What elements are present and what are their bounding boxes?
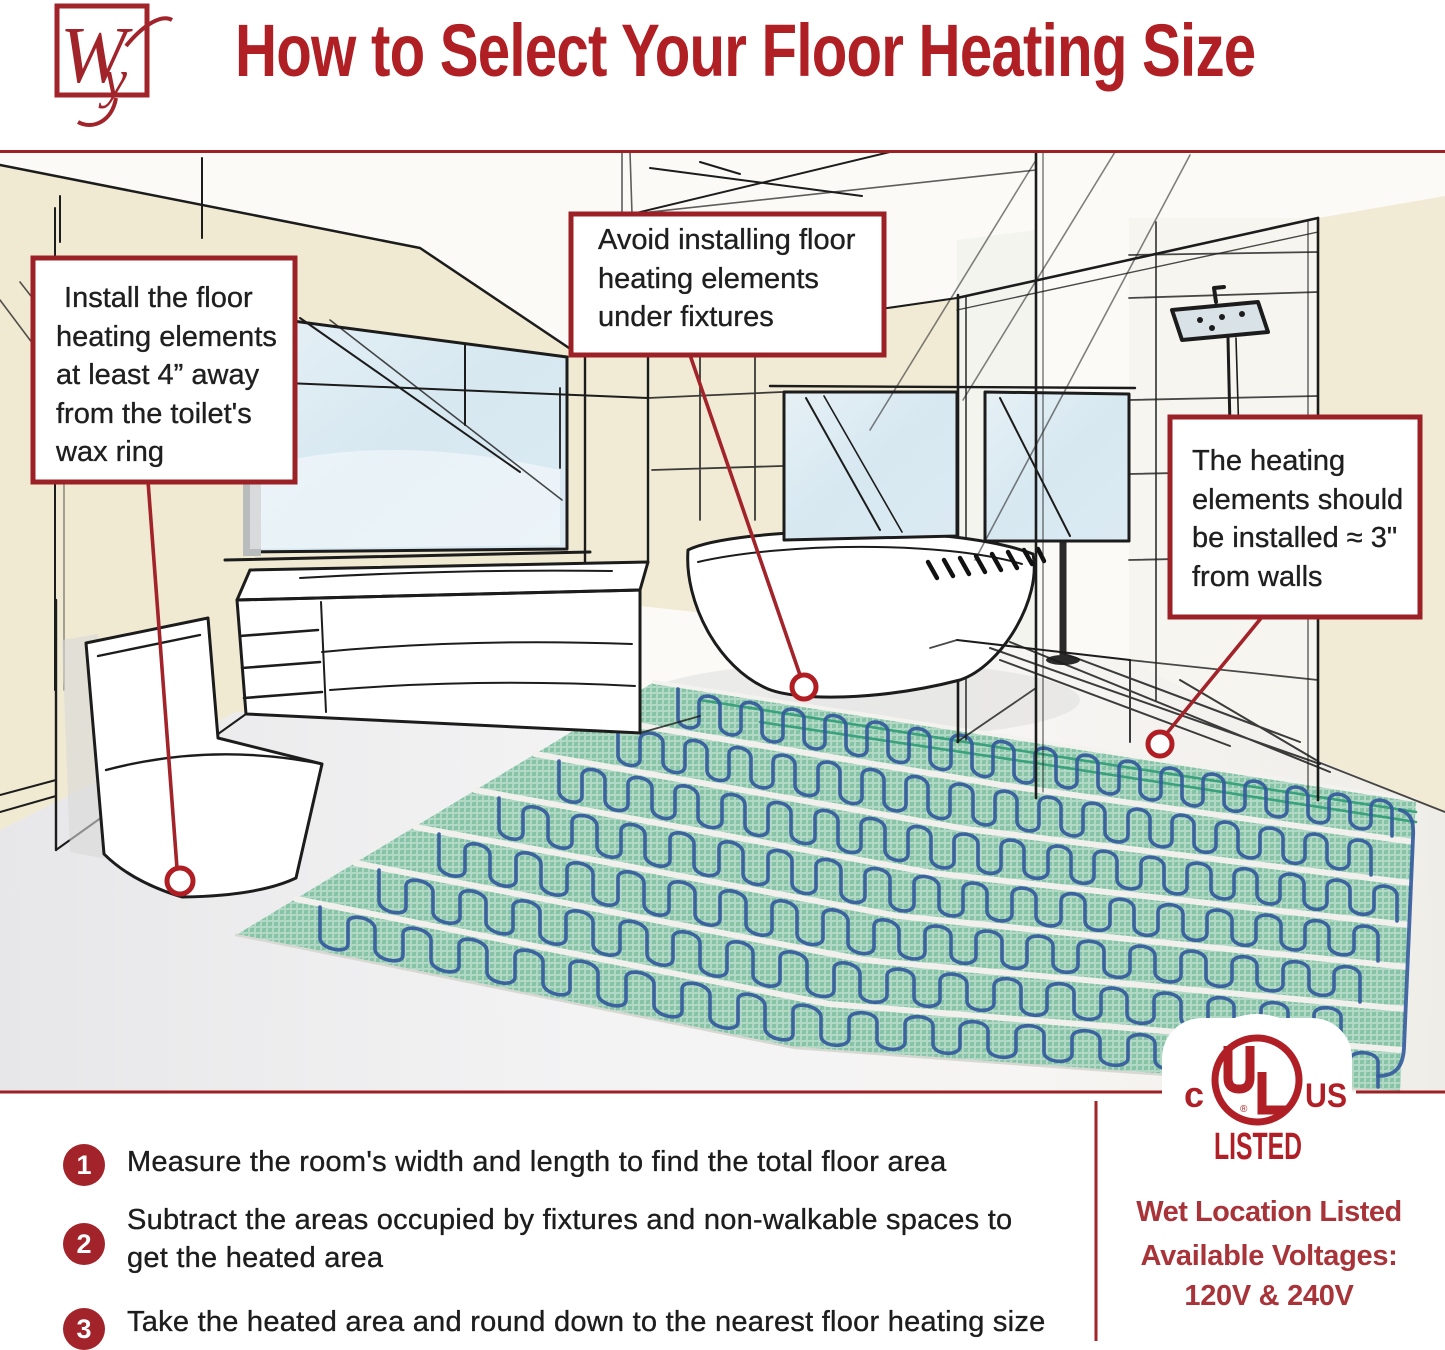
svg-text:y: y [98, 49, 127, 109]
svg-text:US: US [1305, 1077, 1347, 1115]
svg-text:c: c [1184, 1074, 1204, 1115]
svg-text:®: ® [1240, 1104, 1248, 1115]
svg-text:LISTED: LISTED [1214, 1126, 1302, 1168]
